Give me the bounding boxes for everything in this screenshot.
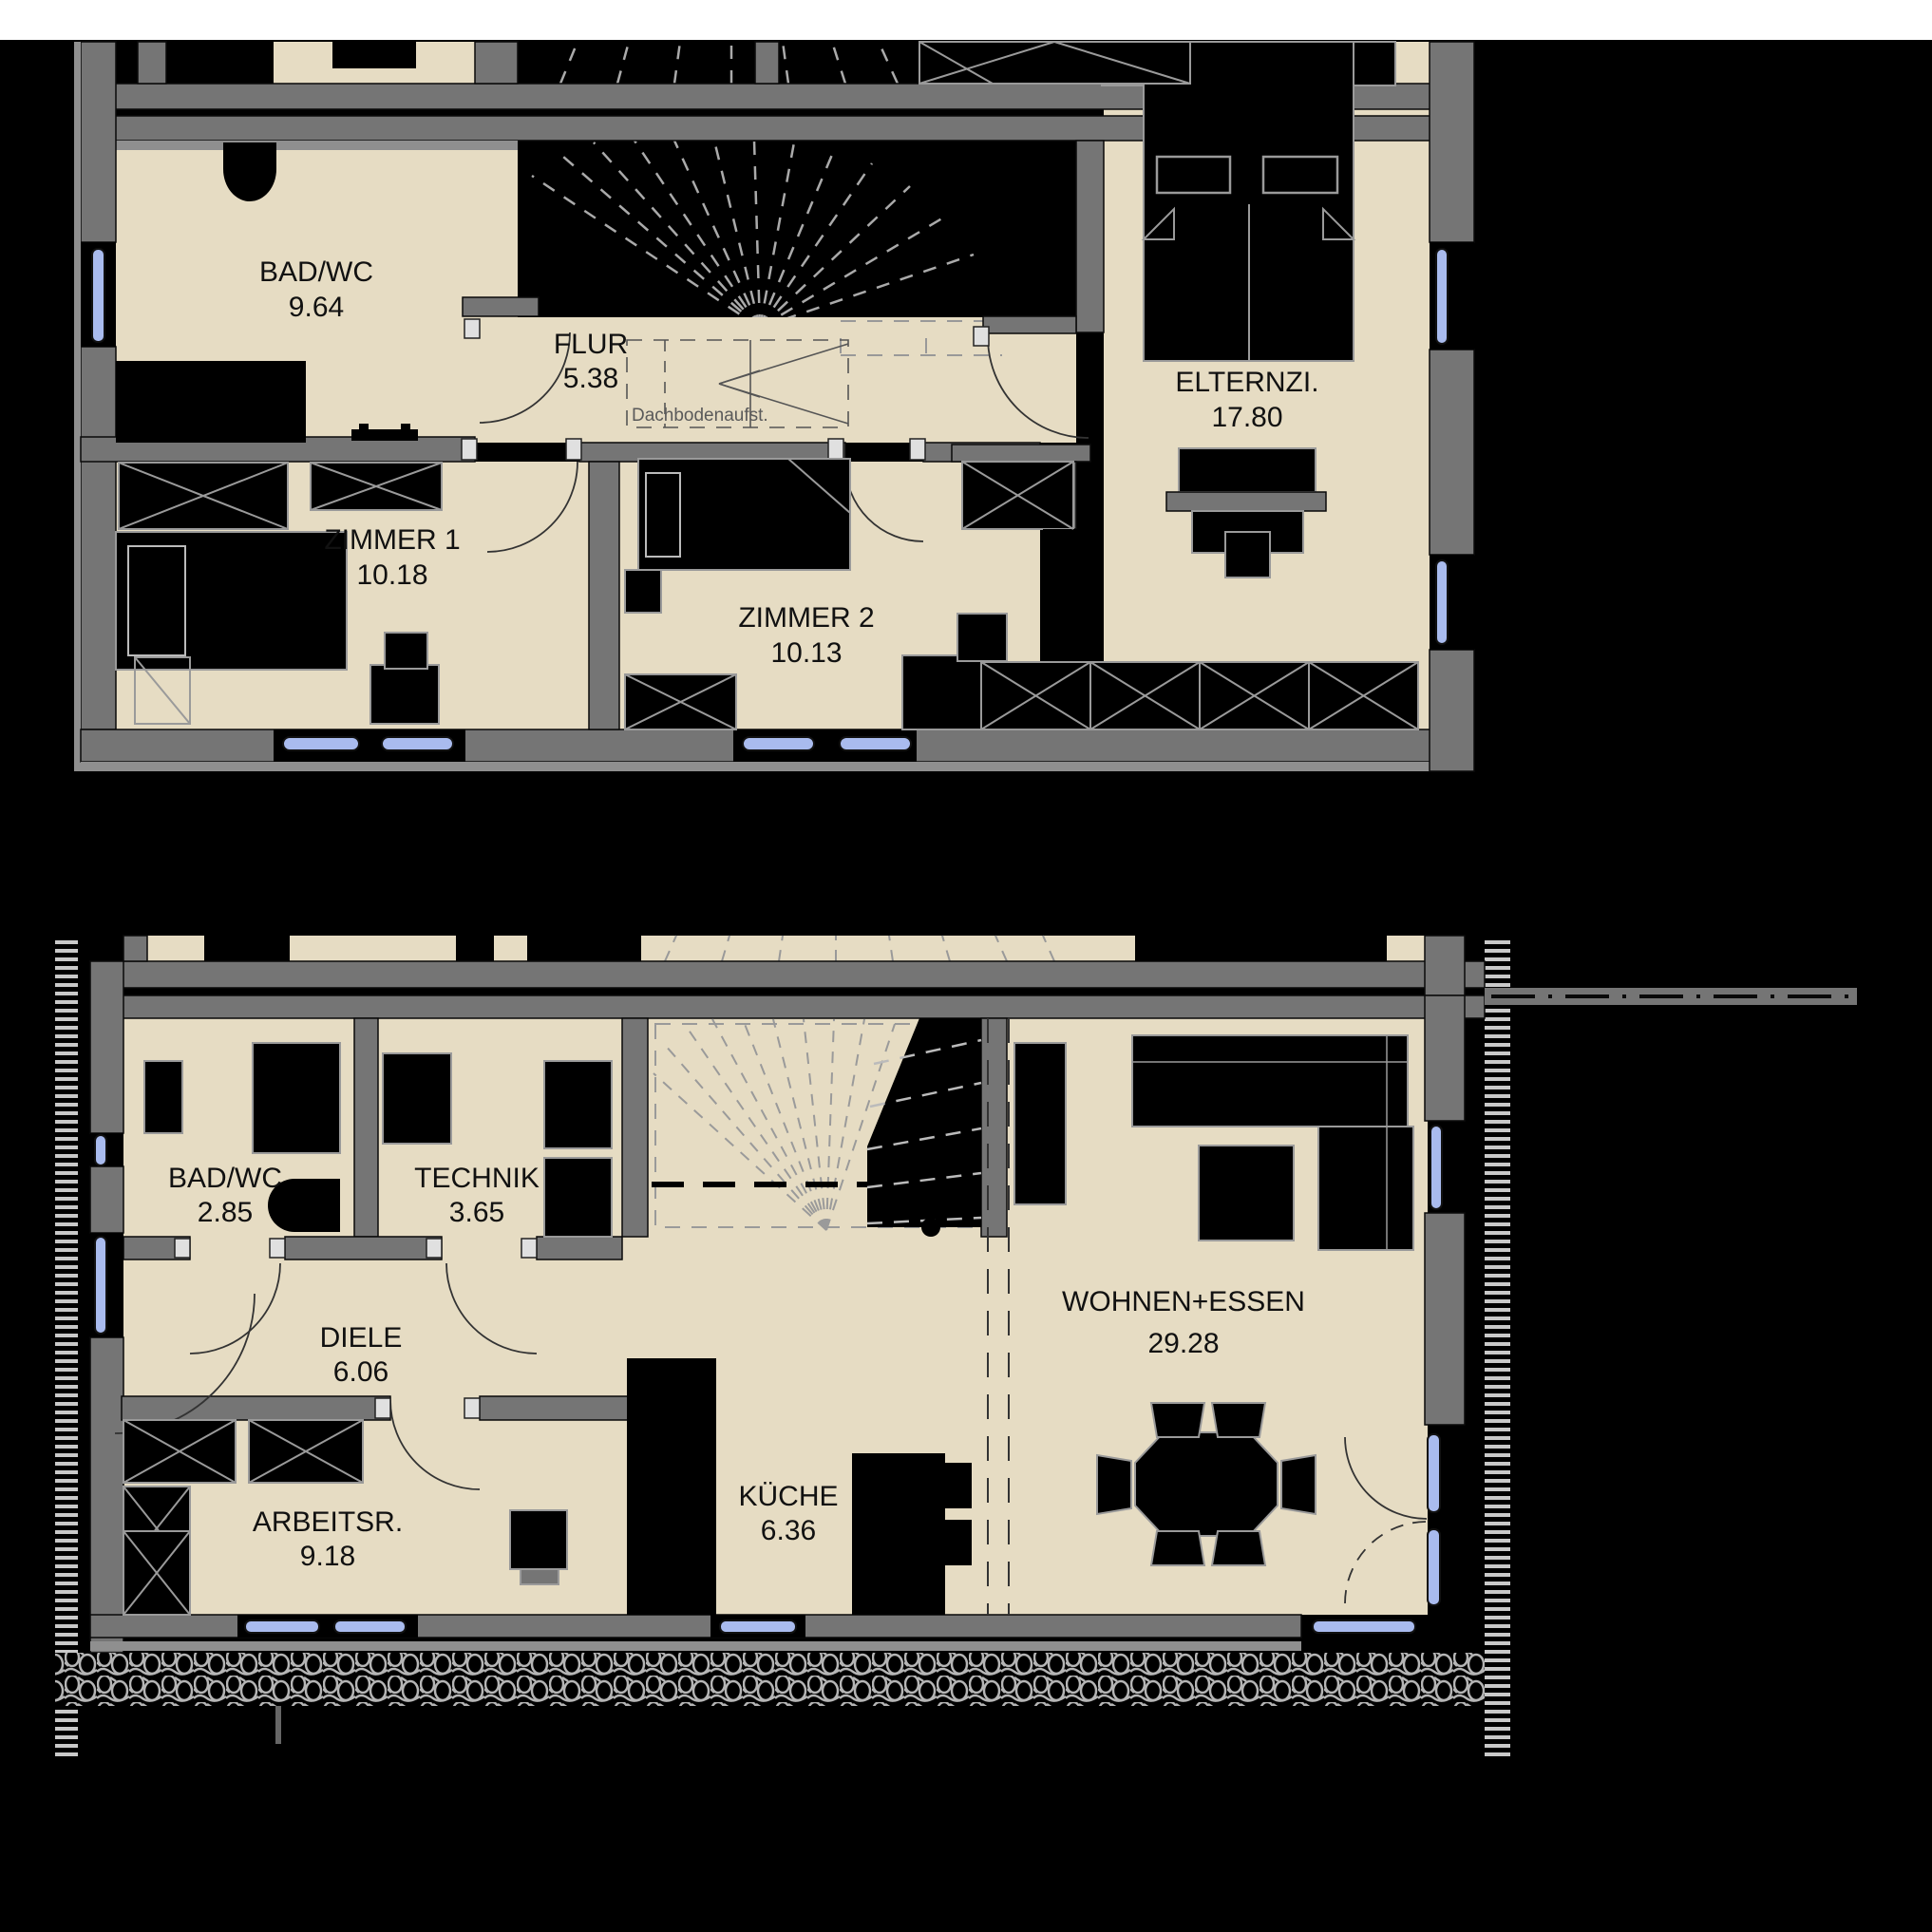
room-area-technik: 3.65 [449,1197,504,1228]
eltern-wardrobe [981,662,1418,729]
room-area-elternzimmer: 17.80 [1211,402,1282,433]
page-top-margin [0,0,1932,40]
room-area-bad-wc-og: 9.64 [289,292,344,323]
section-reference-line [1485,988,1857,1005]
room-label-elternzimmer: ELTERNZI. [1175,367,1318,398]
room-area-flur: 5.38 [563,363,618,394]
room-label-kueche: KÜCHE [738,1481,838,1512]
room-label-zimmer-2: ZIMMER 2 [738,602,874,634]
footing-gravel-hatch [55,1653,1485,1706]
room-area-zimmer-1: 10.18 [356,559,427,591]
right-terrain-hatch [1485,936,1510,1759]
room-label-bad-wc-eg: BAD/WC [168,1163,282,1194]
room-area-arbeitsraum: 9.18 [300,1541,355,1572]
top-cut-fixture [332,42,416,68]
floor-plan-drawing: BAD/WC 9.64 FLUR 5.38 Dachbodenaufst. EL… [0,0,1932,1932]
room-label-diele: DIELE [320,1322,403,1354]
floor-plan-canvas: BAD/WC 9.64 FLUR 5.38 Dachbodenaufst. EL… [0,0,1932,1932]
eltern-bed [1102,42,1395,361]
left-terrain-hatch [55,938,78,1759]
room-area-diele: 6.06 [333,1356,388,1388]
room-area-kueche: 6.36 [761,1515,816,1546]
room-label-bad-wc-og: BAD/WC [259,256,373,288]
upper-floor-plan: BAD/WC 9.64 FLUR 5.38 Dachbodenaufst. EL… [74,40,1474,771]
top-cut-wardrobe [919,42,1190,84]
room-area-bad-wc-eg: 2.85 [198,1197,253,1228]
room-label-zimmer-1: ZIMMER 1 [324,524,460,556]
attic-ladder-label: Dachbodenaufst. [632,406,768,426]
room-label-wohnen-essen: WOHNEN+ESSEN [1062,1286,1305,1317]
room-area-wohnen-essen: 29.28 [1147,1328,1219,1359]
room-label-technik: TECHNIK [414,1163,540,1194]
room-label-arbeitsraum: ARBEITSR. [253,1506,403,1538]
room-area-zimmer-2: 10.13 [770,637,842,669]
room-label-flur: FLUR [554,329,628,360]
